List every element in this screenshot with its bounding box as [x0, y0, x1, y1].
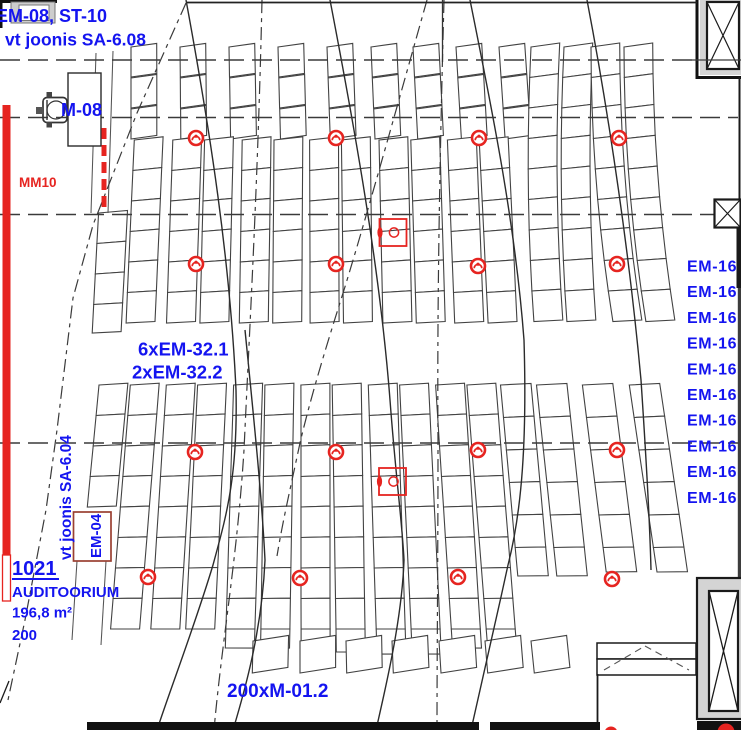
svg-text:AUDITOORIUM: AUDITOORIUM: [12, 584, 119, 601]
svg-text:EM-16: EM-16: [687, 464, 737, 481]
svg-text:EM-16: EM-16: [687, 438, 737, 455]
svg-text:vt joonis SA-6.04: vt joonis SA-6.04: [58, 435, 75, 560]
svg-text:EM-16: EM-16: [687, 361, 737, 378]
svg-text:200xM-01.2: 200xM-01.2: [227, 681, 328, 702]
svg-text:M-08: M-08: [61, 100, 102, 120]
svg-text:EM-08, ST-10: EM-08, ST-10: [0, 6, 107, 26]
svg-text:EM-16: EM-16: [687, 259, 737, 276]
svg-text:196,8 m²: 196,8 m²: [12, 605, 72, 622]
svg-text:200: 200: [12, 627, 37, 644]
svg-text:2xEM-32.2: 2xEM-32.2: [132, 362, 223, 383]
svg-text:MM10: MM10: [19, 175, 57, 190]
svg-text:1021: 1021: [12, 558, 57, 580]
svg-text:EM-04: EM-04: [88, 513, 105, 558]
svg-text:EM-16: EM-16: [687, 310, 737, 327]
svg-text:EM-16: EM-16: [687, 336, 737, 353]
svg-text:vt joonis SA-6.08: vt joonis SA-6.08: [5, 30, 146, 50]
svg-text:EM-16: EM-16: [687, 490, 737, 507]
svg-text:EM-16: EM-16: [687, 284, 737, 301]
svg-text:6xEM-32.1: 6xEM-32.1: [138, 339, 229, 360]
svg-text:EM-16: EM-16: [687, 387, 737, 404]
svg-text:EM-16: EM-16: [687, 413, 737, 430]
